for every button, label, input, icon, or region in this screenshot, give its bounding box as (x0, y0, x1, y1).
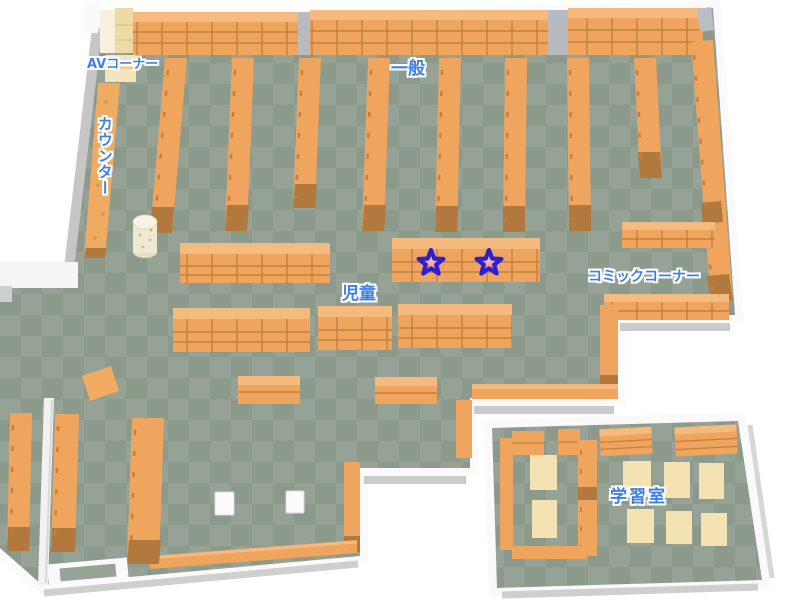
wall-pillar (298, 12, 310, 55)
divider-shelf (578, 440, 597, 556)
bookshelf (435, 58, 461, 232)
low-shelf (180, 243, 330, 283)
star-icon (414, 246, 448, 280)
bookshelf (567, 58, 591, 231)
shelf-block (512, 431, 544, 455)
shelf-block (558, 429, 580, 455)
shelf-block (674, 424, 737, 456)
star-icon (472, 246, 506, 280)
shelf-block (310, 10, 548, 55)
label-study-room: 学習室 (610, 489, 667, 507)
low-shelf (622, 222, 715, 248)
wall-shelf (500, 438, 513, 550)
desk (530, 455, 557, 490)
study-room (492, 421, 772, 595)
bookshelf (503, 58, 527, 232)
wall-shelf (344, 462, 360, 552)
low-shelf (173, 308, 310, 352)
label-comic-corner: コミックコーナー (588, 270, 700, 285)
top-wall-shelves (133, 7, 714, 55)
desk (627, 509, 654, 543)
label-children: 児童 (342, 286, 376, 304)
stool (215, 492, 234, 515)
bookshelf (127, 418, 164, 564)
shelf-block (599, 427, 652, 457)
label-counter: カウンター (96, 116, 112, 196)
star-marker-1[interactable] (414, 246, 448, 280)
display-cylinder (133, 215, 157, 258)
desk (701, 513, 727, 546)
library-floor-map: AVコーナー カウンター 一般 児童 コミックコーナー 学習室 (0, 0, 800, 600)
desk (699, 463, 724, 499)
label-general: 一般 (391, 61, 425, 79)
bookshelf (7, 413, 32, 551)
desk (664, 462, 690, 498)
display-table (238, 376, 300, 404)
label-av-corner: AVコーナー (87, 58, 158, 72)
floor-map-svg (0, 0, 800, 600)
shelf-block (133, 12, 298, 55)
wall-corner (697, 7, 714, 32)
low-shelf (318, 306, 392, 350)
display-table (375, 377, 437, 404)
wall-shelf (456, 400, 472, 458)
low-shelf (398, 304, 512, 348)
wall-shelf (600, 305, 618, 391)
low-shelf (604, 294, 729, 320)
wall-shelf (472, 384, 618, 399)
desk (532, 500, 557, 538)
stool (286, 491, 304, 513)
star-marker-2[interactable] (472, 246, 506, 280)
shelf-block (568, 8, 703, 55)
bookshelf (51, 414, 79, 552)
wall-shelf (512, 546, 587, 559)
desk (666, 511, 692, 544)
wall-pillar (548, 10, 568, 55)
